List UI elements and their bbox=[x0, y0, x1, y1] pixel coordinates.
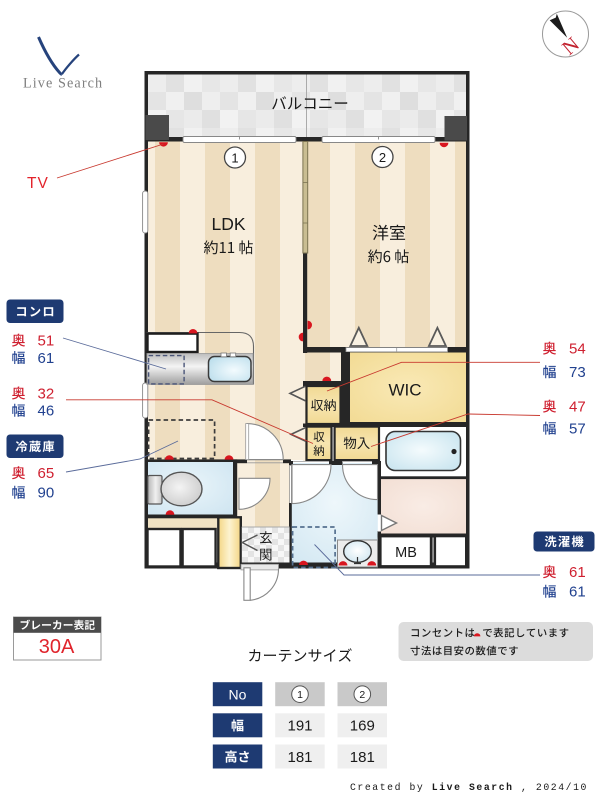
svg-text:191: 191 bbox=[287, 718, 312, 735]
svg-text:61: 61 bbox=[569, 584, 586, 601]
svg-text:73: 73 bbox=[569, 364, 586, 381]
svg-text:169: 169 bbox=[350, 718, 375, 735]
svg-text:30A: 30A bbox=[39, 636, 75, 658]
svg-text:MB: MB bbox=[395, 545, 417, 561]
svg-text:No: No bbox=[229, 687, 247, 703]
svg-text:TV: TV bbox=[27, 175, 49, 192]
svg-text:61: 61 bbox=[569, 564, 586, 581]
svg-text:Live Search: Live Search bbox=[23, 76, 103, 92]
svg-text:2: 2 bbox=[379, 150, 386, 165]
svg-text:47: 47 bbox=[569, 398, 586, 415]
svg-text:57: 57 bbox=[569, 420, 586, 437]
svg-text:46: 46 bbox=[38, 403, 55, 420]
svg-text:Created by Live Search , 2024/: Created by Live Search , 2024/10 bbox=[350, 782, 588, 794]
svg-text:1: 1 bbox=[297, 689, 303, 701]
svg-text:181: 181 bbox=[287, 749, 312, 766]
svg-text:181: 181 bbox=[350, 749, 375, 766]
svg-text:51: 51 bbox=[38, 332, 55, 349]
svg-text:WIC: WIC bbox=[388, 381, 421, 400]
svg-text:2: 2 bbox=[359, 689, 365, 701]
svg-text:61: 61 bbox=[38, 350, 55, 367]
svg-text:65: 65 bbox=[38, 465, 55, 482]
svg-text:54: 54 bbox=[569, 340, 586, 357]
svg-text:90: 90 bbox=[38, 485, 55, 502]
svg-text:1: 1 bbox=[231, 150, 238, 165]
svg-text:LDK: LDK bbox=[211, 214, 245, 234]
svg-text:32: 32 bbox=[38, 385, 55, 402]
